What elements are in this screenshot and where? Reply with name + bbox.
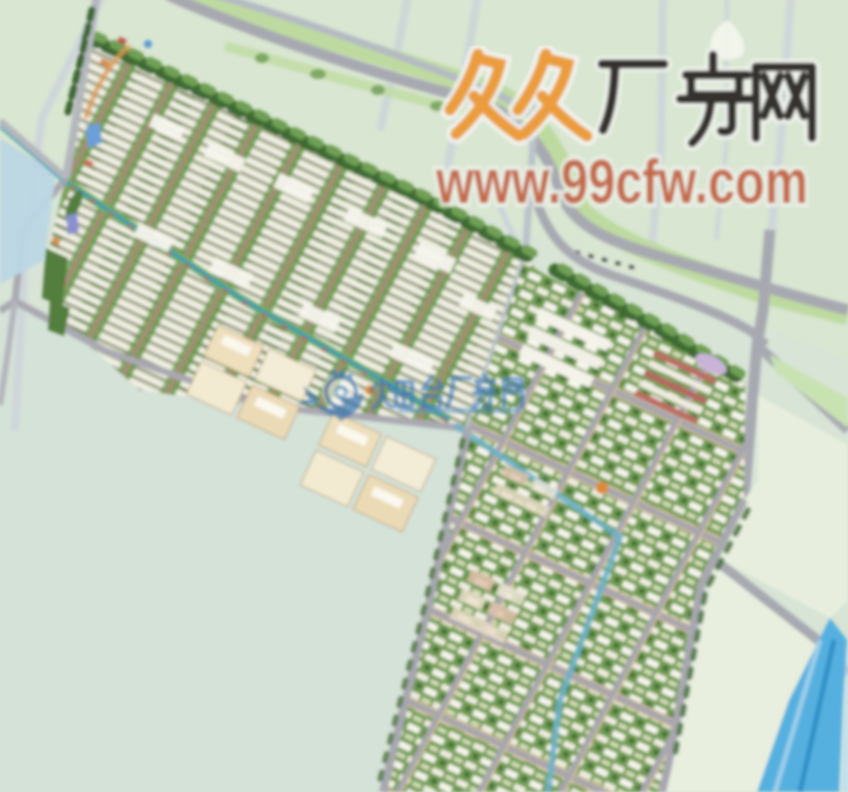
- svg-text:www.99cfw.com: www.99cfw.com: [435, 148, 808, 217]
